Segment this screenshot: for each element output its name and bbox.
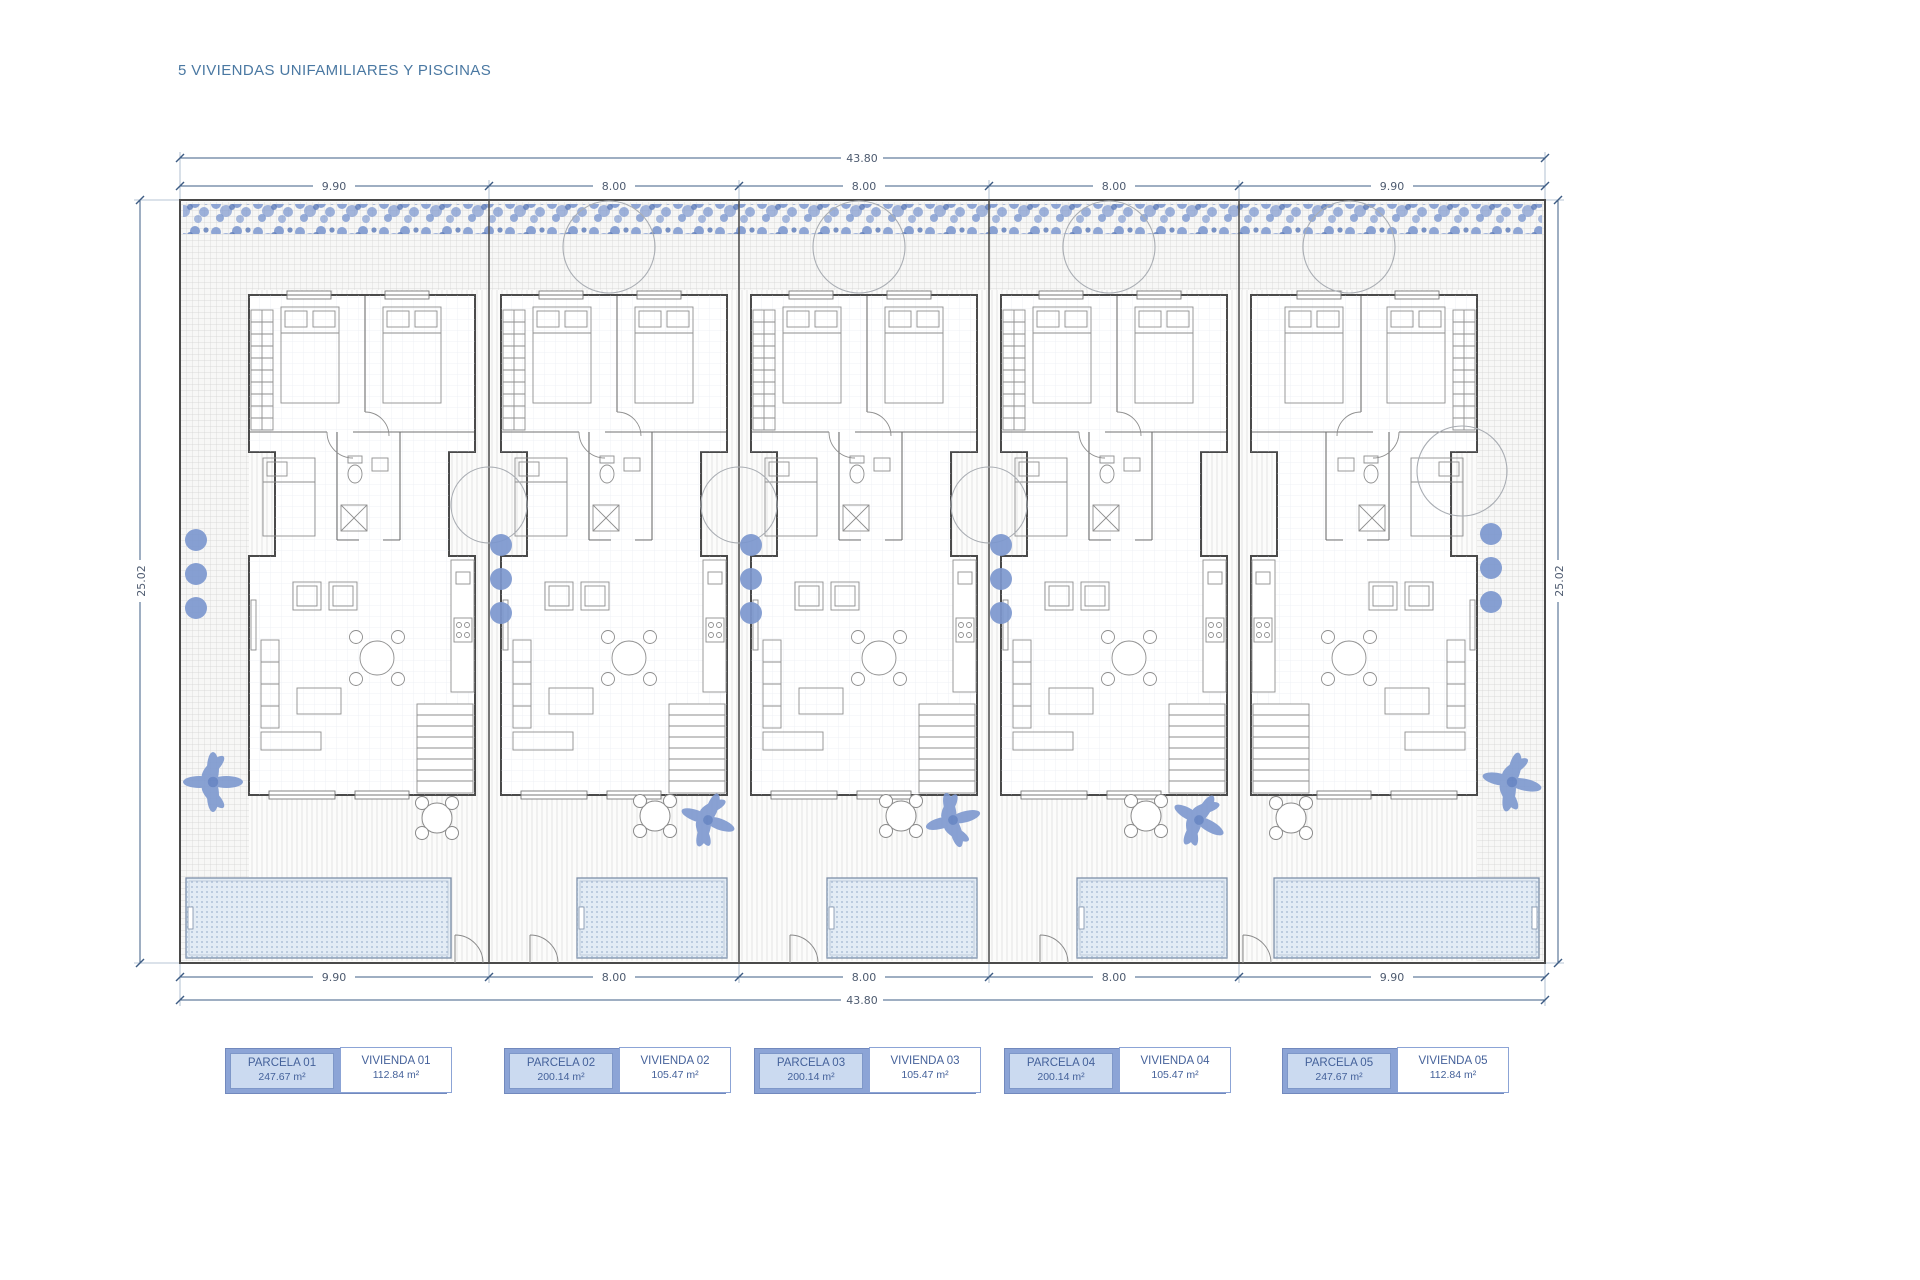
vivienda-05-label: VIVIENDA 05 xyxy=(1398,1055,1508,1067)
vivienda-05-box: VIVIENDA 05 112.84 m² xyxy=(1397,1047,1509,1093)
parcela-05-label: PARCELA 05 xyxy=(1288,1057,1390,1069)
pool-3 xyxy=(827,878,977,958)
unit-building-5 xyxy=(1251,291,1477,799)
dim-seg-top-3: 8.00 xyxy=(852,180,877,193)
parcela-05-area: 247.67 m² xyxy=(1288,1071,1390,1083)
legend-unit-05: PARCELA 05 247.67 m² VIVIENDA 05 112.84 … xyxy=(1282,1048,1504,1094)
legend-unit-04: PARCELA 04 200.14 m² VIVIENDA 04 105.47 … xyxy=(1004,1048,1226,1094)
legend-unit-01: PARCELA 01 247.67 m² VIVIENDA 01 112.84 … xyxy=(225,1048,447,1094)
vivienda-04-box: VIVIENDA 04 105.47 m² xyxy=(1119,1047,1231,1093)
parcela-04-area: 200.14 m² xyxy=(1010,1071,1112,1083)
vivienda-02-box: VIVIENDA 02 105.47 m² xyxy=(619,1047,731,1093)
vivienda-03-box: VIVIENDA 03 105.47 m² xyxy=(869,1047,981,1093)
dim-seg-top-4: 8.00 xyxy=(1102,180,1127,193)
parcela-04-label: PARCELA 04 xyxy=(1010,1057,1112,1069)
dim-seg-top-2: 8.00 xyxy=(602,180,627,193)
parcela-01-label: PARCELA 01 xyxy=(231,1057,333,1069)
vivienda-03-label: VIVIENDA 03 xyxy=(870,1055,980,1067)
parcela-02-area: 200.14 m² xyxy=(510,1071,612,1083)
pool-5 xyxy=(1274,878,1539,958)
parcela-02-box: PARCELA 02 200.14 m² xyxy=(509,1053,613,1089)
parcela-03-area: 200.14 m² xyxy=(760,1071,862,1083)
vivienda-02-label: VIVIENDA 02 xyxy=(620,1055,730,1067)
parcela-05-box: PARCELA 05 247.67 m² xyxy=(1287,1053,1391,1089)
dim-seg-top-5: 9.90 xyxy=(1380,180,1405,193)
unit-building-2 xyxy=(501,291,727,799)
dim-seg-bottom-4: 8.00 xyxy=(1102,971,1127,984)
dim-seg-top-1: 9.90 xyxy=(322,180,347,193)
parcela-03-box: PARCELA 03 200.14 m² xyxy=(759,1053,863,1089)
dim-seg-bottom-3: 8.00 xyxy=(852,971,877,984)
floorplan-page: 5 VIVIENDAS UNIFAMILIARES Y PISCINAS xyxy=(0,0,1920,1280)
dim-side-right: 25.02 xyxy=(1553,565,1566,597)
vivienda-04-label: VIVIENDA 04 xyxy=(1120,1055,1230,1067)
legend-unit-03: PARCELA 03 200.14 m² VIVIENDA 03 105.47 … xyxy=(754,1048,976,1094)
unit-building-1 xyxy=(249,291,475,799)
unit-building-3 xyxy=(751,291,977,799)
dim-seg-bottom-5: 9.90 xyxy=(1380,971,1405,984)
vivienda-05-area: 112.84 m² xyxy=(1398,1069,1508,1081)
vivienda-01-box: VIVIENDA 01 112.84 m² xyxy=(340,1047,452,1093)
pool-2 xyxy=(577,878,727,958)
pools xyxy=(186,878,1539,958)
parcela-04-box: PARCELA 04 200.14 m² xyxy=(1009,1053,1113,1089)
unit-building-4 xyxy=(1001,291,1227,799)
pool-4 xyxy=(1077,878,1227,958)
dim-seg-bottom-2: 8.00 xyxy=(602,971,627,984)
legend-unit-02: PARCELA 02 200.14 m² VIVIENDA 02 105.47 … xyxy=(504,1048,726,1094)
vivienda-01-label: VIVIENDA 01 xyxy=(341,1055,451,1067)
pool-1 xyxy=(186,878,451,958)
dim-seg-bottom-1: 9.90 xyxy=(322,971,347,984)
parcela-01-area: 247.67 m² xyxy=(231,1071,333,1083)
hedge-band xyxy=(183,204,1542,234)
dim-side-left: 25.02 xyxy=(135,565,148,597)
vivienda-04-area: 105.47 m² xyxy=(1120,1069,1230,1081)
parcela-01-box: PARCELA 01 247.67 m² xyxy=(230,1053,334,1089)
vivienda-01-area: 112.84 m² xyxy=(341,1069,451,1081)
vivienda-02-area: 105.47 m² xyxy=(620,1069,730,1081)
parcela-03-label: PARCELA 03 xyxy=(760,1057,862,1069)
dim-total-top: 43.80 xyxy=(846,152,878,165)
parcela-02-label: PARCELA 02 xyxy=(510,1057,612,1069)
vivienda-03-area: 105.47 m² xyxy=(870,1069,980,1081)
dim-total-bottom: 43.80 xyxy=(846,994,878,1007)
